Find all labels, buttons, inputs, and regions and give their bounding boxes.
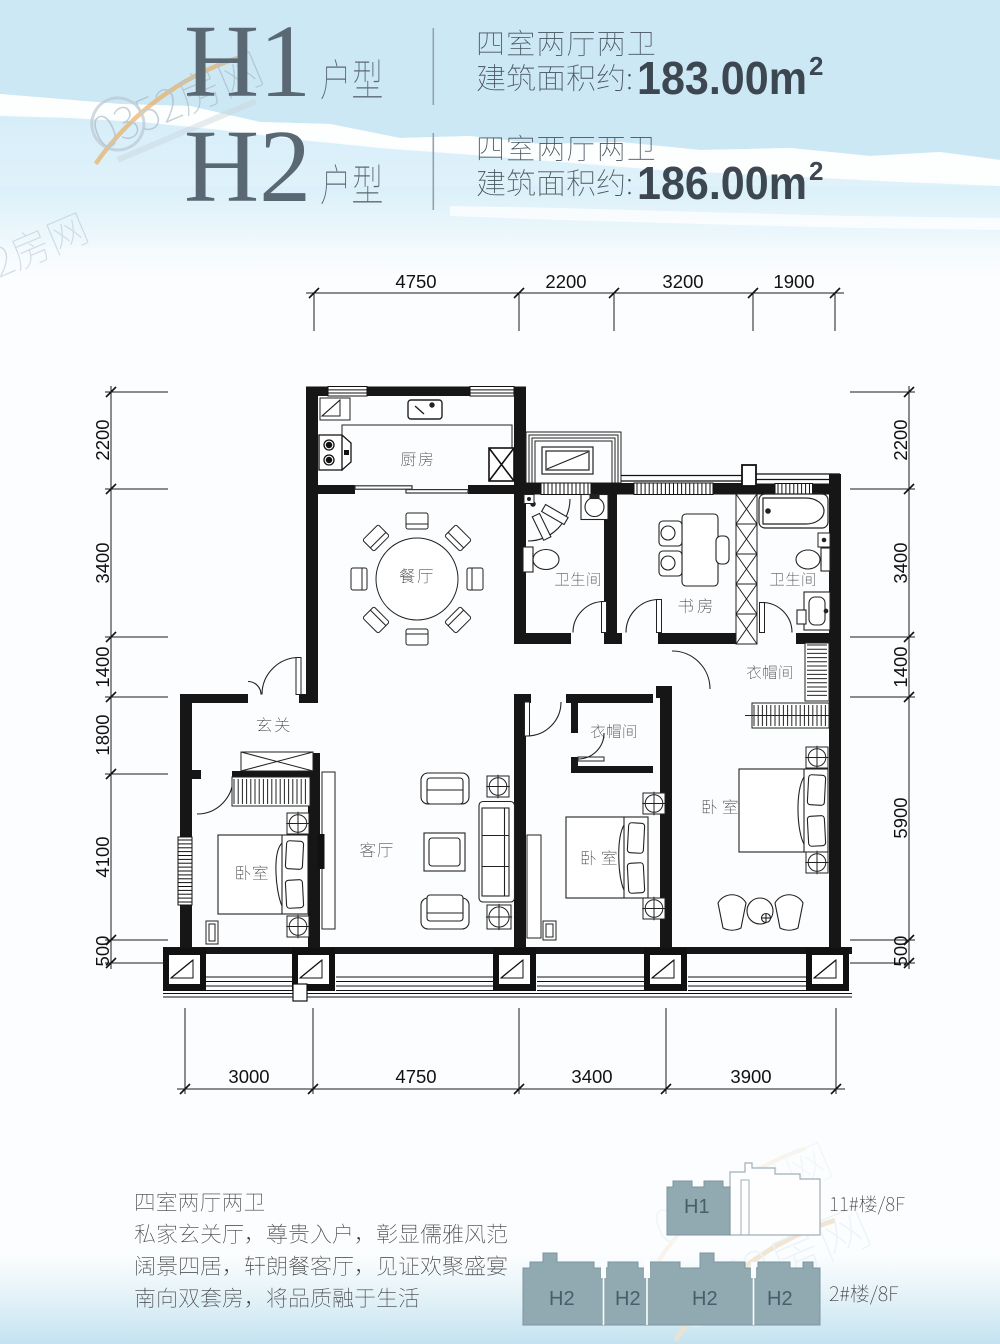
svg-text:H2: H2 (767, 1288, 793, 1310)
svg-text:H2: H2 (549, 1288, 575, 1310)
svg-text:H2: H2 (184, 109, 311, 224)
svg-text:1400: 1400 (92, 646, 113, 687)
svg-text:4750: 4750 (395, 1066, 436, 1087)
svg-text:186.00m: 186.00m (637, 157, 807, 209)
svg-text:2: 2 (809, 156, 823, 186)
svg-text:5900: 5900 (890, 797, 911, 838)
svg-text:H2: H2 (615, 1288, 641, 1310)
svg-text:1800: 1800 (92, 714, 113, 755)
svg-text:2200: 2200 (92, 419, 113, 460)
svg-text:4750: 4750 (395, 271, 436, 292)
svg-text:H2: H2 (692, 1288, 718, 1310)
svg-text:3200: 3200 (662, 271, 703, 292)
svg-text:183.00m: 183.00m (637, 52, 807, 104)
svg-text:H1: H1 (184, 4, 311, 119)
svg-text:3400: 3400 (92, 542, 113, 583)
svg-text:4100: 4100 (92, 836, 113, 877)
svg-text:3000: 3000 (228, 1066, 269, 1087)
svg-text:3400: 3400 (571, 1066, 612, 1087)
svg-text:2200: 2200 (545, 271, 586, 292)
svg-text:1900: 1900 (773, 271, 814, 292)
svg-text:500: 500 (890, 936, 911, 967)
svg-text:2200: 2200 (890, 419, 911, 460)
svg-text:3400: 3400 (890, 542, 911, 583)
svg-text:2: 2 (809, 51, 823, 81)
svg-text:1400: 1400 (890, 646, 911, 687)
svg-text:3900: 3900 (730, 1066, 771, 1087)
svg-text:H1: H1 (684, 1196, 710, 1218)
svg-text:500: 500 (92, 936, 113, 967)
